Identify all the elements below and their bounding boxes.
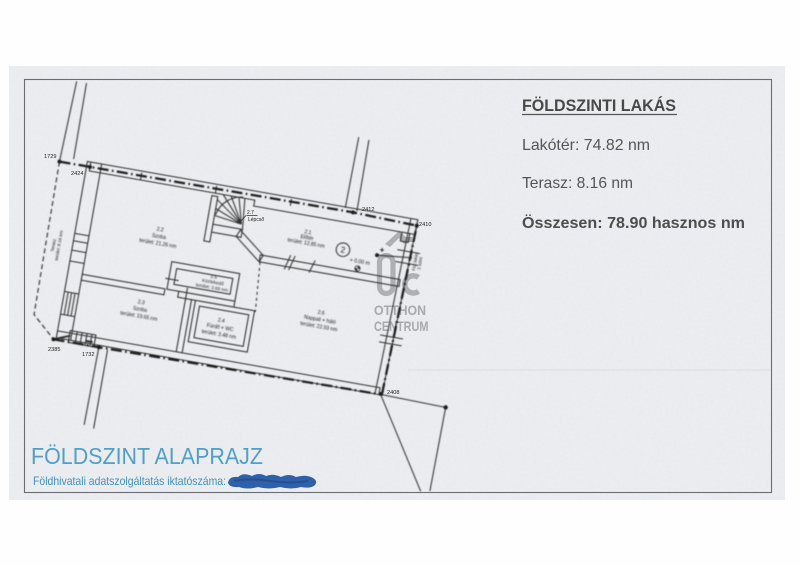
svg-text:2410: 2410 — [419, 222, 431, 228]
svg-text:Lakótér: 74.82 nm: Lakótér: 74.82 nm — [522, 137, 650, 154]
svg-text:2385: 2385 — [48, 347, 60, 353]
svg-text:Terasz: 8.16 nm: Terasz: 8.16 nm — [522, 175, 633, 192]
svg-text:2424: 2424 — [71, 171, 83, 177]
svg-text:1729: 1729 — [44, 154, 56, 160]
svg-text:Lépcső: Lépcső — [248, 217, 264, 223]
svg-text:2408: 2408 — [387, 390, 399, 396]
svg-text:FÖLDSZINTI LAKÁS: FÖLDSZINTI LAKÁS — [522, 96, 676, 115]
svg-text:1732: 1732 — [82, 352, 94, 358]
svg-text:Összesen: 78.90 hasznos nm: Összesen: 78.90 hasznos nm — [522, 213, 745, 232]
svg-text:2412: 2412 — [362, 207, 374, 213]
svg-text:Földhivatali adatszolgáltatás: Földhivatali adatszolgáltatás iktatószám… — [33, 475, 226, 488]
svg-text:CENTRUM: CENTRUM — [374, 318, 429, 334]
svg-text:FÖLDSZINT ALAPRAJZ: FÖLDSZINT ALAPRAJZ — [31, 443, 263, 469]
